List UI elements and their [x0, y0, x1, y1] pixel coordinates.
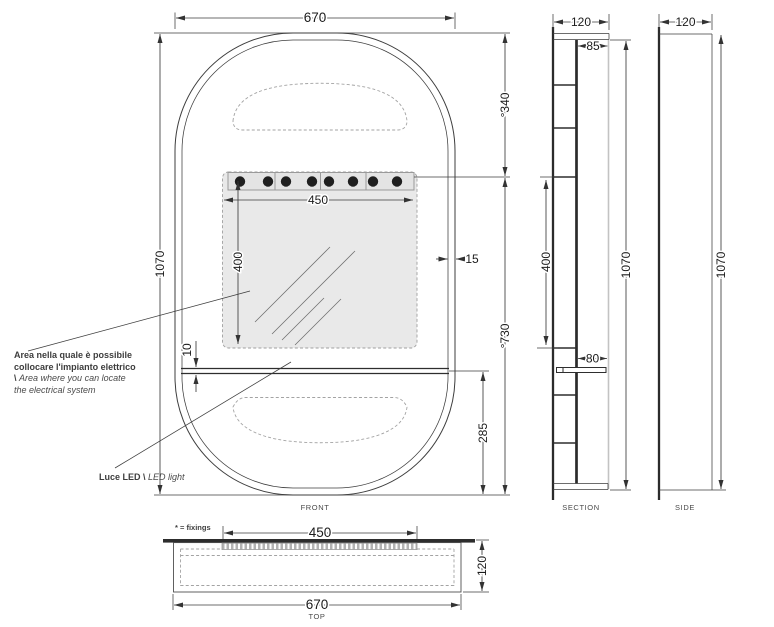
led-light-annotation: Luce LED \ LED light: [99, 472, 185, 484]
svg-text:85: 85: [586, 39, 600, 53]
svg-text:670: 670: [304, 10, 327, 25]
top-view-label: TOP: [308, 612, 325, 621]
dim-front-upper-offset: °340: [414, 34, 512, 177]
dim-section-area-height: 400: [537, 177, 558, 348]
dim-front-width: 670: [175, 10, 455, 29]
section-view-label: SECTION: [562, 503, 600, 512]
technical-drawing: 670 1070 °340 °730 285 15 4: [0, 0, 774, 627]
dim-front-bottom-section: 285: [449, 371, 490, 494]
front-view: 670 1070 °340 °730 285 15 4: [28, 10, 512, 512]
dim-section-shelf-depth: 80: [578, 352, 607, 366]
svg-text:400: 400: [231, 252, 245, 272]
svg-text:15: 15: [465, 252, 479, 266]
dim-section-depth: 120: [553, 14, 609, 30]
dim-section-height: 1070: [610, 40, 633, 490]
dim-side-depth: 120: [659, 14, 712, 30]
svg-text:120: 120: [675, 15, 695, 29]
svg-text:285: 285: [476, 423, 490, 443]
fixings-note: * = fixings: [175, 523, 211, 532]
electrical-area-annotation: Area nella quale è possibile collocare l…: [14, 350, 138, 396]
fixing-strip: [228, 173, 414, 191]
section-connectors: [554, 85, 576, 443]
dim-top-width: 670: [173, 594, 461, 612]
svg-text:120: 120: [571, 15, 591, 29]
front-view-label: FRONT: [301, 503, 330, 512]
led-leader: [115, 362, 291, 468]
svg-text:670: 670: [306, 597, 329, 612]
svg-text:°340: °340: [498, 92, 512, 117]
svg-text:1070: 1070: [153, 250, 167, 277]
svg-text:1070: 1070: [619, 251, 633, 278]
led-light-text-italian: Luce LED \: [99, 472, 146, 482]
dim-front-edge-gap: 15: [436, 252, 479, 266]
svg-text:°730: °730: [498, 323, 512, 348]
svg-text:400: 400: [539, 252, 553, 272]
dim-front-lower-offset: °730: [498, 178, 512, 494]
svg-text:1070: 1070: [714, 251, 728, 278]
drawing-canvas: 670 1070 °340 °730 285 15 4: [0, 0, 774, 627]
dim-side-height: 1070: [712, 35, 728, 490]
side-view-label: SIDE: [675, 503, 695, 512]
led-light-text-english: LED light: [148, 472, 185, 482]
electrical-area-leader: [28, 291, 250, 351]
side-view: 120 1070 SIDE: [659, 14, 728, 512]
svg-text:450: 450: [308, 193, 328, 207]
top-cabinet-box: [174, 543, 462, 592]
section-view: 120 85 400 80 1070 SECTION: [537, 14, 633, 512]
dim-section-inner-depth: 85: [578, 39, 608, 53]
dim-top-depth: 120: [463, 540, 489, 592]
svg-text:120: 120: [475, 556, 489, 576]
electrical-area-text-english: Area where you can locate the electrical…: [14, 373, 126, 395]
shelf: [181, 369, 449, 374]
front-lower-dashed-panel: [233, 398, 407, 443]
front-upper-dashed-panel: [233, 83, 407, 130]
section-shelf: [557, 368, 607, 373]
top-view: * = fixings 450 120: [163, 523, 489, 621]
svg-text:450: 450: [309, 525, 332, 540]
top-mirror-bar: [163, 539, 475, 543]
svg-text:10: 10: [180, 343, 194, 357]
svg-text:80: 80: [586, 352, 600, 366]
